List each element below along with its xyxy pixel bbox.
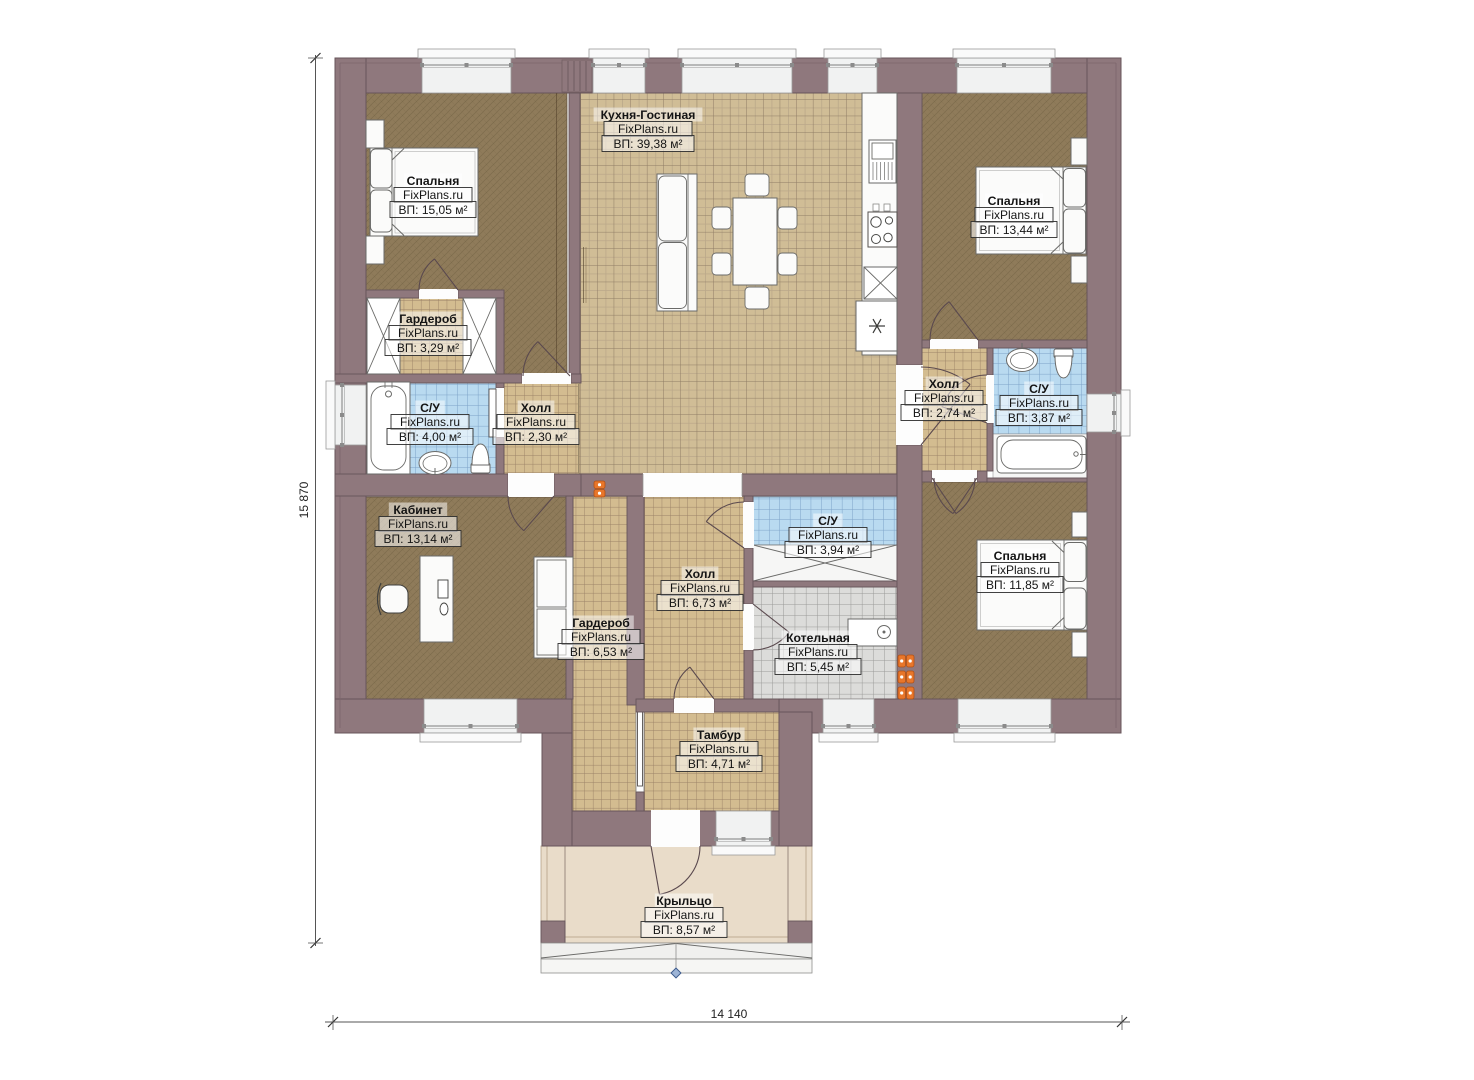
svg-text:Котельная: Котельная xyxy=(786,631,850,645)
svg-text:Спальня: Спальня xyxy=(407,174,460,188)
svg-text:ВП: 8,57 м²: ВП: 8,57 м² xyxy=(653,923,715,937)
svg-text:С/У: С/У xyxy=(1029,382,1049,396)
svg-text:FixPlans.ru: FixPlans.ru xyxy=(914,391,974,405)
svg-text:ВП: 3,94 м²: ВП: 3,94 м² xyxy=(797,543,859,557)
svg-text:FixPlans.ru: FixPlans.ru xyxy=(689,742,749,756)
svg-text:ВП: 6,53 м²: ВП: 6,53 м² xyxy=(570,645,632,659)
svg-text:Холл: Холл xyxy=(929,377,960,391)
svg-text:Кабинет: Кабинет xyxy=(393,503,442,517)
svg-text:FixPlans.ru: FixPlans.ru xyxy=(506,415,566,429)
svg-text:С/У: С/У xyxy=(420,401,440,415)
svg-text:FixPlans.ru: FixPlans.ru xyxy=(1009,396,1069,410)
svg-text:ВП: 2,30 м²: ВП: 2,30 м² xyxy=(505,430,567,444)
svg-text:ВП: 3,29 м²: ВП: 3,29 м² xyxy=(397,341,459,355)
svg-text:Гардероб: Гардероб xyxy=(572,616,630,630)
svg-text:15 870: 15 870 xyxy=(297,481,311,518)
svg-text:Гардероб: Гардероб xyxy=(399,312,457,326)
svg-text:С/У: С/У xyxy=(818,514,838,528)
svg-text:Холл: Холл xyxy=(685,567,716,581)
svg-text:FixPlans.ru: FixPlans.ru xyxy=(398,326,458,340)
svg-text:FixPlans.ru: FixPlans.ru xyxy=(990,563,1050,577)
svg-text:FixPlans.ru: FixPlans.ru xyxy=(798,528,858,542)
svg-text:FixPlans.ru: FixPlans.ru xyxy=(388,517,448,531)
svg-text:FixPlans.ru: FixPlans.ru xyxy=(654,908,714,922)
svg-text:ВП: 13,44 м²: ВП: 13,44 м² xyxy=(980,223,1049,237)
svg-text:ВП: 3,87 м²: ВП: 3,87 м² xyxy=(1008,411,1070,425)
svg-text:ВП: 2,74 м²: ВП: 2,74 м² xyxy=(913,406,975,420)
svg-text:ВП: 15,05 м²: ВП: 15,05 м² xyxy=(399,203,468,217)
svg-text:14 140: 14 140 xyxy=(711,1007,748,1021)
svg-text:ВП: 6,73 м²: ВП: 6,73 м² xyxy=(669,596,731,610)
svg-text:ВП: 5,45 м²: ВП: 5,45 м² xyxy=(787,660,849,674)
svg-text:ВП: 4,00 м²: ВП: 4,00 м² xyxy=(399,430,461,444)
svg-text:ВП: 4,71 м²: ВП: 4,71 м² xyxy=(688,757,750,771)
svg-text:FixPlans.ru: FixPlans.ru xyxy=(400,415,460,429)
svg-text:FixPlans.ru: FixPlans.ru xyxy=(618,122,678,136)
svg-text:Крыльцо: Крыльцо xyxy=(656,894,711,908)
svg-text:ВП: 39,38 м²: ВП: 39,38 м² xyxy=(614,137,683,151)
svg-text:Тамбур: Тамбур xyxy=(697,728,741,742)
svg-text:Кухня-Гостиная: Кухня-Гостиная xyxy=(601,108,696,122)
svg-text:Холл: Холл xyxy=(521,401,552,415)
svg-text:FixPlans.ru: FixPlans.ru xyxy=(788,645,848,659)
svg-text:Спальня: Спальня xyxy=(994,549,1047,563)
svg-text:Спальня: Спальня xyxy=(988,194,1041,208)
svg-text:ВП: 11,85 м²: ВП: 11,85 м² xyxy=(986,578,1054,592)
svg-text:ВП: 13,14 м²: ВП: 13,14 м² xyxy=(384,532,453,546)
svg-text:FixPlans.ru: FixPlans.ru xyxy=(403,188,463,202)
svg-text:FixPlans.ru: FixPlans.ru xyxy=(984,208,1044,222)
svg-text:FixPlans.ru: FixPlans.ru xyxy=(670,581,730,595)
svg-text:FixPlans.ru: FixPlans.ru xyxy=(571,630,631,644)
